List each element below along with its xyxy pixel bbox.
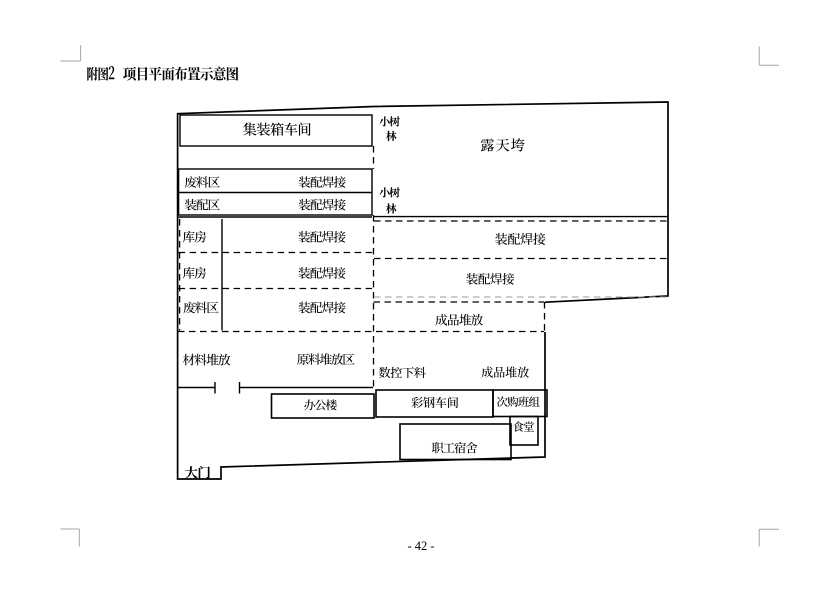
svg-text:- 42 -: - 42 - xyxy=(408,539,435,553)
